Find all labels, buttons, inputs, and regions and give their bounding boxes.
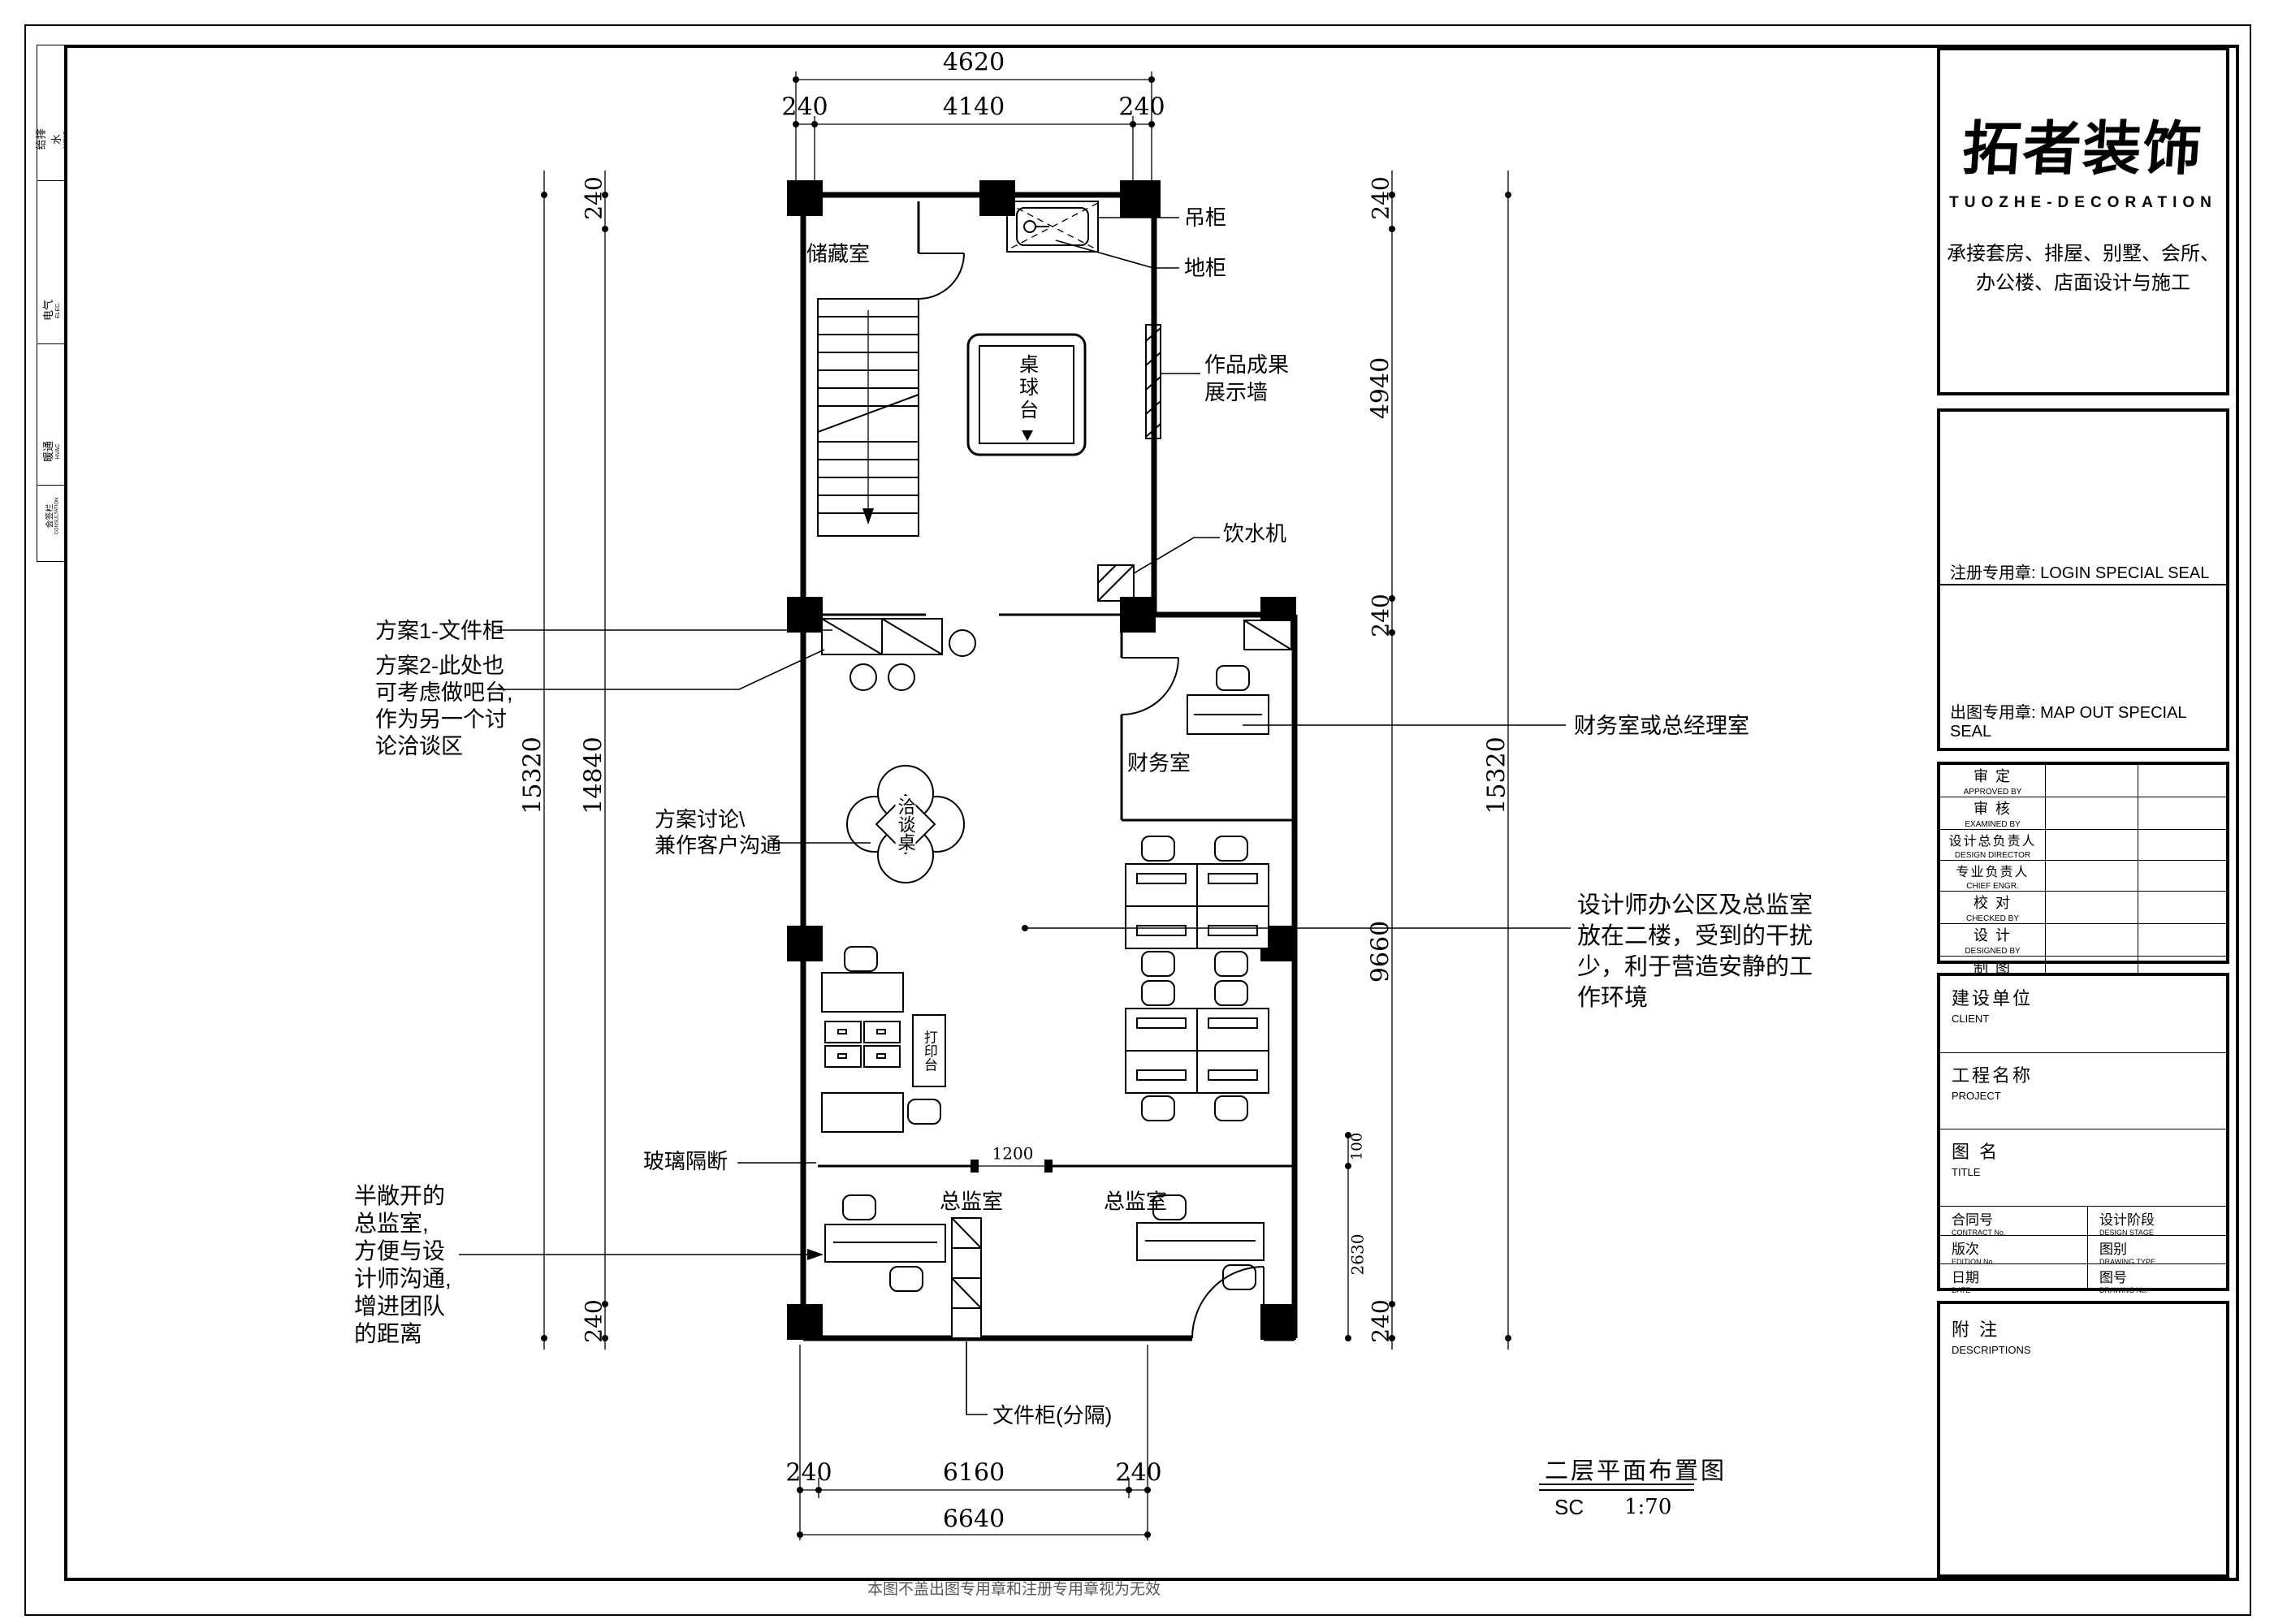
callout-plan2-line4: 论洽谈区: [375, 735, 463, 758]
descriptions-label: 附 注: [1952, 1315, 2226, 1341]
dim-bottom-total: 6640: [943, 1506, 1005, 1532]
dim-right-15320: 15320: [1484, 736, 1510, 814]
dim-right-9660: 9660: [1368, 921, 1394, 983]
scale-value: 1:70: [1624, 1497, 1671, 1518]
furniture-label-print: 打印台: [922, 1030, 936, 1072]
dim-left-240-top: 240: [581, 176, 605, 219]
dim-left-240-bottom: 240: [581, 1299, 605, 1342]
callout-floor-cabinet: 地柜: [1184, 257, 1226, 279]
room-label-finance: 财务室: [1127, 752, 1191, 774]
dim-inner-100: 100: [1351, 1133, 1366, 1160]
callout-water-dispenser: 饮水机: [1223, 523, 1286, 545]
dim-left-15320: 15320: [520, 736, 546, 814]
dim-top-240-right: 240: [1118, 94, 1165, 120]
company-logo-box: 拓者装饰 TUOZHE-DECORATION 承接套房、排屋、别墅、会所、 办公…: [1937, 47, 2229, 395]
mapout-seal-label: 出图专用章: MAP OUT SPECIAL SEAL: [1950, 699, 2226, 741]
callout-semiopen-line1: 半敞开的: [354, 1184, 445, 1207]
dim-bottom-6160: 6160: [943, 1460, 1005, 1486]
callout-hanging-cabinet: 吊柜: [1184, 207, 1226, 229]
callout-plan2-line1: 方案2-此处也: [375, 654, 504, 677]
callout-semiopen-line2: 总监室,: [354, 1212, 429, 1235]
dim-bottom-240-right: 240: [1115, 1460, 1161, 1486]
room-label-director-right: 总监室: [1104, 1190, 1167, 1212]
company-logo: 拓者装饰: [1937, 101, 2229, 186]
callout-plan2-line3: 作为另一个讨: [375, 708, 507, 731]
title-block: 拓者装饰 TUOZHE-DECORATION 承接套房、排屋、别墅、会所、 办公…: [1937, 47, 2236, 1578]
callout-display-wall-line2: 展示墙: [1204, 382, 1268, 404]
project-info-box: 建设单位 CLIENT 工程名称 PROJECT 图 名 TITLE 合同号CO…: [1937, 973, 2229, 1291]
validity-note: 本图不盖出图专用章和注册专用章视为无效: [867, 1582, 1161, 1598]
approval-row-design-director: 设计总负责人DESIGN DIRECTOR: [1940, 830, 2046, 861]
dim-top-total: 4620: [943, 50, 1005, 76]
dim-right-240-bottom: 240: [1368, 1299, 1392, 1342]
workstation-pod-right-1: [1126, 836, 1269, 976]
dim-left-14840: 14840: [581, 736, 607, 814]
company-tagline-line1: 承接套房、排屋、别墅、会所、: [1940, 240, 2226, 269]
drawing-title-underline: [1539, 1484, 1694, 1490]
scale-label: SC: [1554, 1497, 1584, 1518]
callout-plan2-line2: 可考虑做吧台,: [375, 681, 513, 704]
drawing-sheet: 给排水WS&D 电气ELEC. 暖通HVAC 会签栏CONSULTATION: [0, 0, 2274, 1624]
dim-top-4140: 4140: [943, 94, 1005, 120]
callout-discuss-line2: 兼作客户沟通: [655, 835, 781, 857]
callout-glass-partition: 玻璃隔断: [643, 1151, 728, 1173]
design-stage-field: 设计阶段DESIGN STAGE: [2088, 1207, 2226, 1236]
callout-semiopen-line3: 方便与设: [354, 1239, 445, 1263]
callout-designer-note-line3: 少，利于营造安静的工: [1577, 955, 1813, 979]
furniture-label-negotiation: 洽谈桌: [895, 796, 915, 853]
storage-room: [919, 201, 964, 299]
approval-row-examined: 审 核EXAMINED BY: [1940, 797, 2046, 830]
edition-no-field: 版次EDITION No.: [1940, 1236, 2088, 1264]
callout-plan1: 方案1-文件柜: [375, 620, 504, 642]
dim-inner-1200: 1200: [992, 1146, 1034, 1163]
room-label-storage: 储藏室: [806, 243, 870, 265]
callout-finance-note: 财务室或总经理室: [1574, 715, 1749, 737]
water-dispenser: [1098, 565, 1134, 601]
dim-top-240-left: 240: [781, 94, 828, 120]
date-field: 日期DATE: [1940, 1264, 2088, 1288]
approval-row-designed: 设 计DESIGNED BY: [1940, 924, 2046, 957]
approval-row-checked: 校 对CHECKED BY: [1940, 892, 2046, 924]
register-seal-label: 注册专用章: LOGIN SPECIAL SEAL: [1950, 559, 2209, 583]
room-label-director-left: 总监室: [940, 1190, 1003, 1212]
dim-inner-2630: 2630: [1350, 1234, 1367, 1276]
dim-bottom-240-left: 240: [785, 1460, 832, 1486]
floor-plan-drawing: [0, 0, 1937, 1624]
approval-row-approved: 审 定APPROVED BY: [1940, 765, 2046, 797]
callout-semiopen-line5: 增进团队: [354, 1294, 445, 1318]
callout-designer-note-line4: 作环境: [1577, 986, 1648, 1010]
dim-right-240-top: 240: [1368, 176, 1392, 219]
leader-lines: [459, 218, 1571, 1415]
contract-no-field: 合同号CONTRACT No.: [1940, 1207, 2088, 1236]
approval-table: 审 定APPROVED BY 审 核EXAMINED BY 设计总负责人DESI…: [1937, 762, 2229, 964]
descriptions-label-en: DESCRIPTIONS: [1952, 1344, 2226, 1356]
callout-display-wall-line1: 作品成果: [1204, 354, 1289, 376]
reception-cabinet: [822, 619, 975, 690]
dimension-lines: [541, 71, 1511, 1540]
kitchenette-sink: [1007, 201, 1098, 252]
company-tagline-line2: 办公楼、店面设计与施工: [1940, 269, 2226, 298]
dim-right-4940: 4940: [1368, 357, 1394, 419]
project-section: 工程名称 PROJECT: [1940, 1053, 2226, 1129]
title-section: 图 名 TITLE: [1940, 1129, 2226, 1207]
callout-semiopen-line6: 的距离: [354, 1322, 422, 1345]
descriptions-box: 附 注 DESCRIPTIONS: [1937, 1301, 2229, 1578]
drawing-no-field: 图号DRAWING No.: [2088, 1264, 2226, 1288]
company-logo-en: TUOZHE-DECORATION: [1940, 194, 2226, 212]
staircase: [818, 299, 919, 536]
furniture-label-billiard: 桌球台: [1016, 354, 1036, 422]
drawing-type-field: 图别DRAWING TYPE: [2088, 1236, 2226, 1264]
director-rooms: [825, 1195, 1264, 1338]
glass-partition: [818, 1160, 1295, 1173]
approval-row-chief-engineer: 专业负责人CHIEF ENGR.: [1940, 861, 2046, 892]
callout-discuss-line1: 方案讨论\: [655, 809, 745, 831]
callout-designer-note-line1: 设计师办公区及总监室: [1577, 893, 1813, 918]
finance-room: [1122, 615, 1295, 820]
client-section: 建设单位 CLIENT: [1940, 976, 2226, 1053]
workstation-pod-right-2: [1126, 981, 1269, 1121]
drawing-title: 二层平面布置图: [1545, 1459, 1727, 1484]
callout-semiopen-line4: 计师沟通,: [354, 1267, 452, 1290]
callout-file-cabinet: 文件柜(分隔): [992, 1405, 1112, 1427]
callout-designer-note-line2: 放在二楼，受到的干扰: [1577, 924, 1813, 948]
seal-box: 注册专用章: LOGIN SPECIAL SEAL 出图专用章: MAP OUT…: [1937, 408, 2229, 751]
dim-right-240-mid: 240: [1368, 594, 1392, 637]
